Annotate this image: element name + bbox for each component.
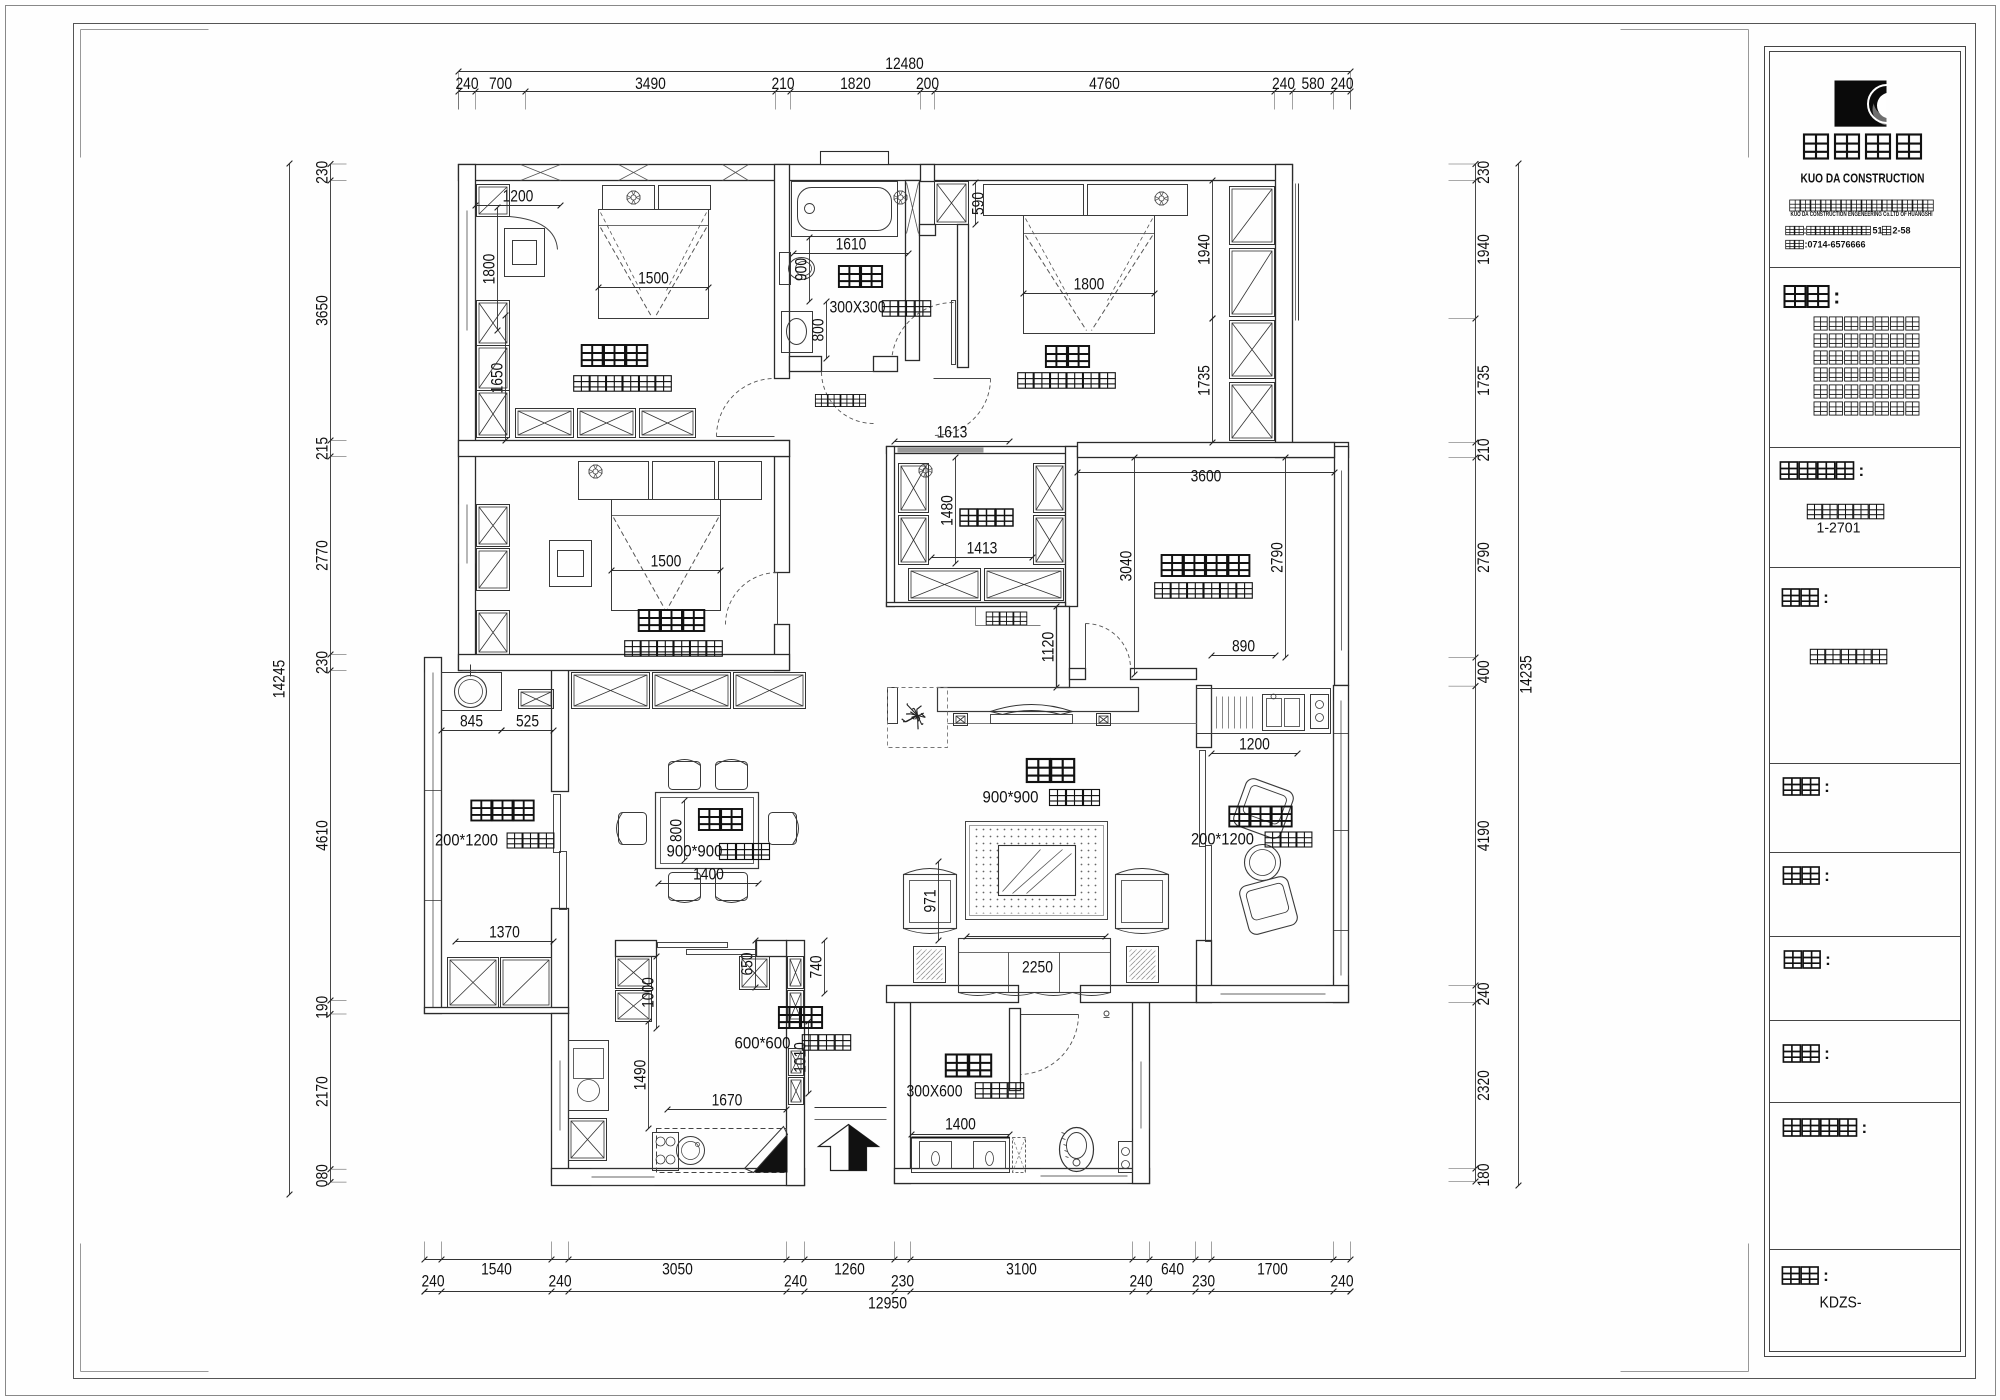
svg-text:1370: 1370 <box>489 924 520 942</box>
svg-text:580: 580 <box>1301 75 1324 93</box>
svg-text::: : <box>1833 285 1840 308</box>
svg-text:240: 240 <box>1129 1273 1152 1291</box>
svg-text:1735: 1735 <box>1196 365 1214 396</box>
svg-text::: : <box>1858 461 1864 480</box>
svg-text:3650: 3650 <box>314 295 332 326</box>
svg-text::: : <box>1825 950 1831 969</box>
svg-text::: : <box>1823 1266 1829 1285</box>
svg-text:900*900: 900*900 <box>983 789 1039 807</box>
svg-text:1940: 1940 <box>1475 234 1493 265</box>
svg-text:KUO DA CONSTRUCTION ENGENEERIN: KUO DA CONSTRUCTION ENGENEERING Co.LTD O… <box>1791 211 1933 218</box>
svg-text:240: 240 <box>1330 1273 1353 1291</box>
svg-text:800: 800 <box>668 819 686 842</box>
svg-text:600*600: 600*600 <box>735 1035 791 1053</box>
svg-text:200*1200: 200*1200 <box>435 832 498 850</box>
svg-text::: : <box>1823 588 1829 607</box>
svg-text::: : <box>1824 777 1830 796</box>
svg-text::0714-6576666: :0714-6576666 <box>1805 240 1866 250</box>
svg-text:KDZS-: KDZS- <box>1820 1295 1862 1312</box>
svg-text:230: 230 <box>314 651 332 674</box>
svg-text:1800: 1800 <box>481 254 499 285</box>
svg-text:1-2701: 1-2701 <box>1817 520 1861 537</box>
svg-text:1200: 1200 <box>1239 736 1270 754</box>
svg-text::: : <box>1804 226 1807 236</box>
svg-text:1400: 1400 <box>945 1116 976 1134</box>
svg-text:1650: 1650 <box>489 363 507 394</box>
svg-text:240: 240 <box>1330 75 1353 93</box>
svg-text:1735: 1735 <box>1475 365 1493 396</box>
svg-text:800: 800 <box>810 318 828 341</box>
svg-text:3100: 3100 <box>1006 1261 1037 1279</box>
svg-text:3040: 3040 <box>1118 551 1136 582</box>
svg-text:1940: 1940 <box>1196 234 1214 265</box>
svg-text:180: 180 <box>1475 1163 1493 1186</box>
svg-text:3600: 3600 <box>1191 468 1222 486</box>
svg-text:12480: 12480 <box>885 55 924 73</box>
svg-text:190: 190 <box>314 996 332 1019</box>
svg-text:4190: 4190 <box>1475 820 1493 851</box>
svg-text:1610: 1610 <box>836 236 867 254</box>
svg-text:890: 890 <box>1232 638 1255 656</box>
svg-text:2170: 2170 <box>314 1076 332 1107</box>
svg-text:230: 230 <box>314 161 332 184</box>
svg-text:1120: 1120 <box>1040 632 1058 663</box>
svg-text:1400: 1400 <box>693 866 724 884</box>
svg-text:2320: 2320 <box>1475 1070 1493 1101</box>
svg-text:51: 51 <box>1873 226 1883 236</box>
svg-text:2250: 2250 <box>1022 959 1053 977</box>
svg-text:900: 900 <box>793 258 811 281</box>
svg-text:210: 210 <box>1475 438 1493 461</box>
svg-text:12950: 12950 <box>868 1295 907 1313</box>
svg-text:1260: 1260 <box>834 1261 865 1279</box>
svg-text:240: 240 <box>548 1273 571 1291</box>
svg-text:230: 230 <box>891 1273 914 1291</box>
svg-text:4760: 4760 <box>1089 75 1120 93</box>
svg-text:210: 210 <box>771 75 794 93</box>
svg-text:2770: 2770 <box>314 540 332 571</box>
svg-text:1500: 1500 <box>651 553 682 571</box>
svg-text:240: 240 <box>421 1273 444 1291</box>
svg-text:1670: 1670 <box>712 1092 743 1110</box>
svg-text:640: 640 <box>1161 1261 1184 1279</box>
svg-text:300X600: 300X600 <box>907 1083 963 1101</box>
svg-text:200*1200: 200*1200 <box>1191 831 1254 849</box>
svg-text:700: 700 <box>489 75 512 93</box>
svg-text:1800: 1800 <box>1074 276 1105 294</box>
svg-text:1490: 1490 <box>632 1060 650 1091</box>
svg-text:400: 400 <box>1475 660 1493 683</box>
svg-text:14235: 14235 <box>1518 655 1536 694</box>
svg-text:900*900: 900*900 <box>667 843 723 861</box>
svg-text:1500: 1500 <box>638 270 669 288</box>
svg-text:300X300: 300X300 <box>830 299 886 317</box>
svg-text:KUO DA CONSTRUCTION: KUO DA CONSTRUCTION <box>1801 172 1925 186</box>
svg-text:3050: 3050 <box>662 1261 693 1279</box>
svg-text:080: 080 <box>314 1164 332 1187</box>
svg-text::: : <box>1861 1118 1867 1137</box>
svg-text:240: 240 <box>1475 982 1493 1005</box>
svg-text:1000: 1000 <box>640 977 658 1008</box>
svg-text:590: 590 <box>970 192 988 215</box>
svg-text:1613: 1613 <box>937 424 968 442</box>
svg-text:525: 525 <box>516 713 539 731</box>
svg-text:1540: 1540 <box>481 1261 512 1279</box>
svg-text:740: 740 <box>808 955 826 978</box>
svg-text:1700: 1700 <box>1257 1261 1288 1279</box>
svg-text::: : <box>1824 866 1830 885</box>
svg-text:200: 200 <box>916 75 939 93</box>
svg-text:230: 230 <box>1475 161 1493 184</box>
svg-text:2790: 2790 <box>1269 542 1287 573</box>
svg-text:215: 215 <box>314 437 332 460</box>
svg-text:3490: 3490 <box>635 75 666 93</box>
svg-text:1480: 1480 <box>939 495 957 526</box>
svg-text:2-58: 2-58 <box>1893 226 1911 236</box>
svg-text:14245: 14245 <box>271 660 289 699</box>
svg-text:845: 845 <box>460 713 483 731</box>
svg-text::: : <box>1824 1044 1830 1063</box>
svg-text:1413: 1413 <box>967 540 998 558</box>
svg-text:1820: 1820 <box>840 75 871 93</box>
svg-text:4610: 4610 <box>314 820 332 851</box>
svg-text:240: 240 <box>784 1273 807 1291</box>
svg-text:971: 971 <box>922 889 940 912</box>
svg-text:2790: 2790 <box>1475 542 1493 573</box>
svg-text:240: 240 <box>455 75 478 93</box>
svg-text:230: 230 <box>1192 1273 1215 1291</box>
svg-text:240: 240 <box>1272 75 1295 93</box>
